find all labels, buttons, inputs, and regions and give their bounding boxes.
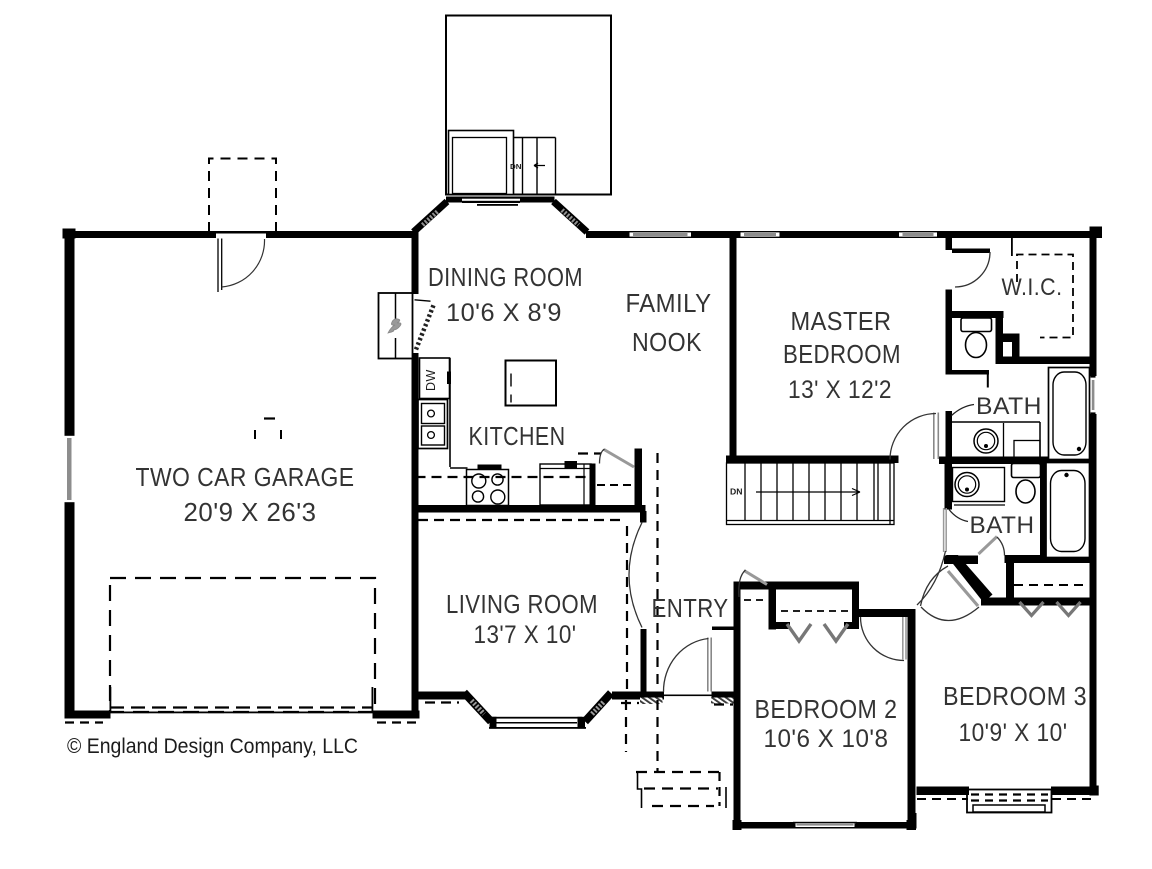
svg-text:BATH: BATH — [976, 393, 1042, 420]
svg-text:NOOK: NOOK — [632, 327, 702, 357]
svg-text:10'6 X 10'8: 10'6 X 10'8 — [764, 725, 889, 753]
svg-text:© England Design Company, LLC: © England Design Company, LLC — [67, 735, 358, 758]
svg-text:TWO CAR GARAGE: TWO CAR GARAGE — [136, 462, 355, 492]
svg-text:DN: DN — [730, 488, 743, 497]
svg-text:BEDROOM: BEDROOM — [783, 339, 901, 369]
svg-text:FAMILY: FAMILY — [626, 288, 712, 318]
svg-text:ENTRY: ENTRY — [652, 593, 729, 623]
svg-text:W.I.C.: W.I.C. — [1002, 274, 1063, 301]
svg-text:13'7 X 10': 13'7 X 10' — [474, 621, 577, 649]
svg-text:10'6 X 8'9: 10'6 X 8'9 — [446, 299, 562, 327]
svg-text:20'9 X 26'3: 20'9 X 26'3 — [184, 497, 317, 527]
svg-text:KITCHEN: KITCHEN — [469, 421, 566, 451]
svg-text:BEDROOM 2: BEDROOM 2 — [755, 694, 898, 724]
svg-text:DW: DW — [424, 369, 438, 391]
svg-text:LIVING ROOM: LIVING ROOM — [446, 589, 598, 619]
svg-text:DINING ROOM: DINING ROOM — [428, 262, 583, 292]
svg-text:MASTER: MASTER — [791, 306, 892, 336]
svg-text:13' X 12'2: 13' X 12'2 — [788, 376, 892, 404]
svg-text:BATH: BATH — [970, 512, 1035, 539]
svg-text:BEDROOM 3: BEDROOM 3 — [943, 681, 1087, 711]
svg-text:DN: DN — [510, 162, 522, 171]
svg-text:10'9' X 10': 10'9' X 10' — [959, 719, 1068, 747]
